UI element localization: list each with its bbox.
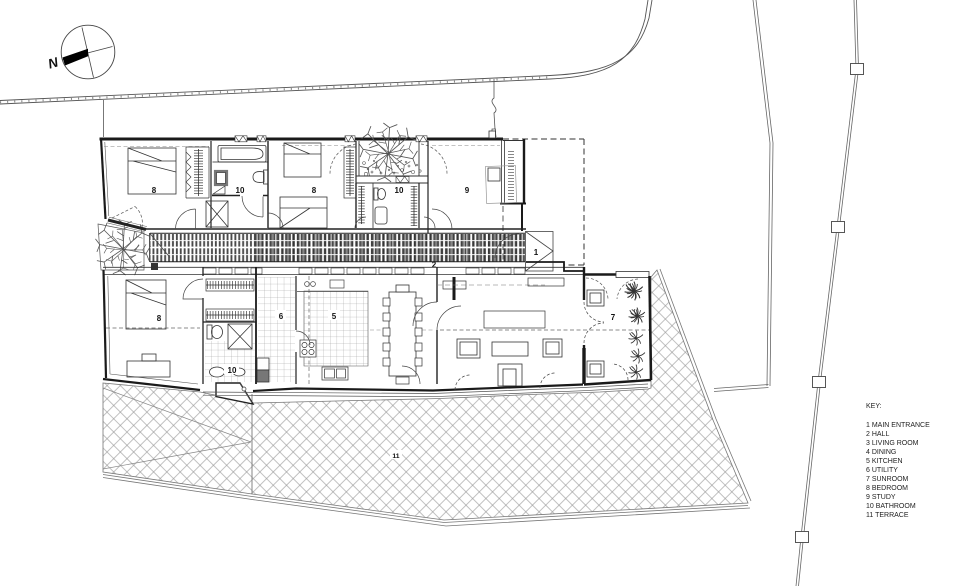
svg-text:9: 9 <box>465 186 470 195</box>
svg-text:3 LIVING ROOM: 3 LIVING ROOM <box>866 440 919 447</box>
svg-text:10: 10 <box>395 186 404 195</box>
svg-text:2: 2 <box>432 261 437 270</box>
svg-text:7: 7 <box>611 313 616 322</box>
svg-text:1: 1 <box>534 248 539 257</box>
svg-text:5 KITCHEN: 5 KITCHEN <box>866 458 903 465</box>
svg-text:8 BEDROOM: 8 BEDROOM <box>866 485 908 492</box>
svg-text:11: 11 <box>392 453 399 460</box>
svg-text:1 MAIN ENTRANCE: 1 MAIN ENTRANCE <box>866 422 930 429</box>
svg-text:9 STUDY: 9 STUDY <box>866 494 896 501</box>
svg-text:10: 10 <box>236 186 245 195</box>
svg-text:4 DINING: 4 DINING <box>866 449 896 456</box>
svg-text:5: 5 <box>332 312 337 321</box>
svg-text:10 BATHROOM: 10 BATHROOM <box>866 503 916 510</box>
svg-text:8: 8 <box>157 314 162 323</box>
svg-text:KEY:: KEY: <box>866 403 882 410</box>
svg-text:6 UTILITY: 6 UTILITY <box>866 467 898 474</box>
svg-text:8: 8 <box>312 186 317 195</box>
svg-text:6: 6 <box>279 312 284 321</box>
svg-text:10: 10 <box>228 366 237 375</box>
svg-text:2 HALL: 2 HALL <box>866 431 889 438</box>
svg-text:7 SUNROOM: 7 SUNROOM <box>866 476 909 483</box>
svg-text:11 TERRACE: 11 TERRACE <box>866 512 909 519</box>
